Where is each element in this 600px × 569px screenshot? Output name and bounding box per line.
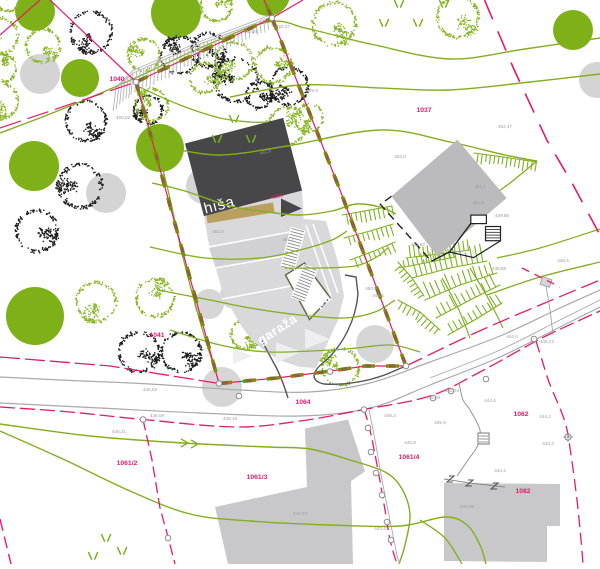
svg-text:445,09: 445,09	[426, 395, 440, 400]
svg-text:1061/3: 1061/3	[247, 474, 268, 481]
svg-text:450,4: 450,4	[365, 286, 377, 291]
svg-text:446,3: 446,3	[384, 413, 396, 418]
svg-text:445,8: 445,8	[404, 440, 416, 445]
svg-text:1062: 1062	[513, 411, 528, 418]
svg-text:451,9: 451,9	[472, 200, 484, 205]
svg-text:449,9: 449,9	[306, 88, 318, 93]
svg-text:1041: 1041	[149, 332, 164, 339]
svg-text:1061/2: 1061/2	[117, 460, 138, 467]
svg-text:449,6: 449,6	[372, 293, 384, 298]
svg-text:1040: 1040	[109, 76, 124, 83]
svg-text:443,2: 443,2	[542, 441, 554, 446]
svg-text:452,1: 452,1	[474, 184, 486, 189]
svg-text:451,2: 451,2	[282, 237, 294, 242]
svg-text:446,4: 446,4	[557, 258, 569, 263]
svg-text:452,0: 452,0	[394, 154, 406, 159]
svg-text:444,04: 444,04	[293, 511, 307, 516]
svg-text:448,85: 448,85	[492, 266, 506, 271]
svg-text:450,02: 450,02	[116, 115, 130, 120]
svg-text:445,9: 445,9	[434, 420, 446, 425]
svg-text:445,22: 445,22	[540, 339, 554, 344]
svg-text:444,2: 444,2	[539, 414, 551, 419]
svg-text:444,4: 444,4	[484, 398, 496, 403]
svg-text:443,4: 443,4	[374, 526, 386, 531]
svg-text:451,87: 451,87	[411, 242, 425, 247]
svg-text:450,27: 450,27	[276, 24, 290, 29]
svg-text:452,47: 452,47	[498, 124, 512, 129]
svg-text:448,03: 448,03	[143, 387, 157, 392]
svg-text:452,0: 452,0	[212, 229, 224, 234]
svg-text:444,05: 444,05	[460, 504, 474, 509]
svg-text:1082: 1082	[515, 488, 530, 495]
svg-text:1061/4: 1061/4	[399, 454, 420, 461]
svg-text:444,4: 444,4	[494, 468, 506, 473]
svg-text:449,85: 449,85	[495, 213, 509, 218]
svg-text:445,04: 445,04	[445, 388, 459, 393]
svg-text:1037: 1037	[416, 107, 431, 114]
svg-text:448,09: 448,09	[150, 413, 164, 418]
svg-text:450,25: 450,25	[244, 29, 258, 34]
svg-text:445,21: 445,21	[112, 429, 126, 434]
svg-text:444,6: 444,6	[506, 334, 518, 339]
svg-text:1064: 1064	[295, 399, 310, 406]
svg-text:448,16: 448,16	[223, 416, 237, 421]
